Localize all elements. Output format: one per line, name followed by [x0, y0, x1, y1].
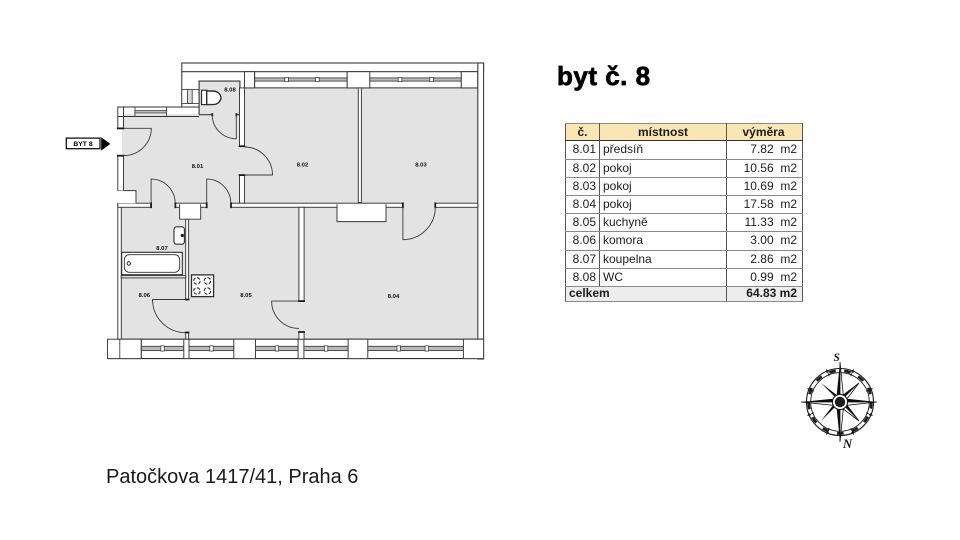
- svg-text:8.03: 8.03: [415, 163, 427, 169]
- svg-text:8.07: 8.07: [156, 246, 168, 252]
- svg-text:8.02: 8.02: [297, 163, 309, 169]
- svg-text:BYT 8: BYT 8: [73, 141, 92, 148]
- svg-text:8.06: 8.06: [139, 293, 151, 299]
- svg-text:8.05: 8.05: [240, 293, 252, 299]
- svg-text:8.04: 8.04: [388, 294, 400, 300]
- svg-text:S: S: [834, 352, 840, 364]
- svg-text:8.08: 8.08: [224, 88, 236, 94]
- svg-text:N: N: [842, 437, 853, 451]
- svg-text:8.01: 8.01: [192, 164, 204, 170]
